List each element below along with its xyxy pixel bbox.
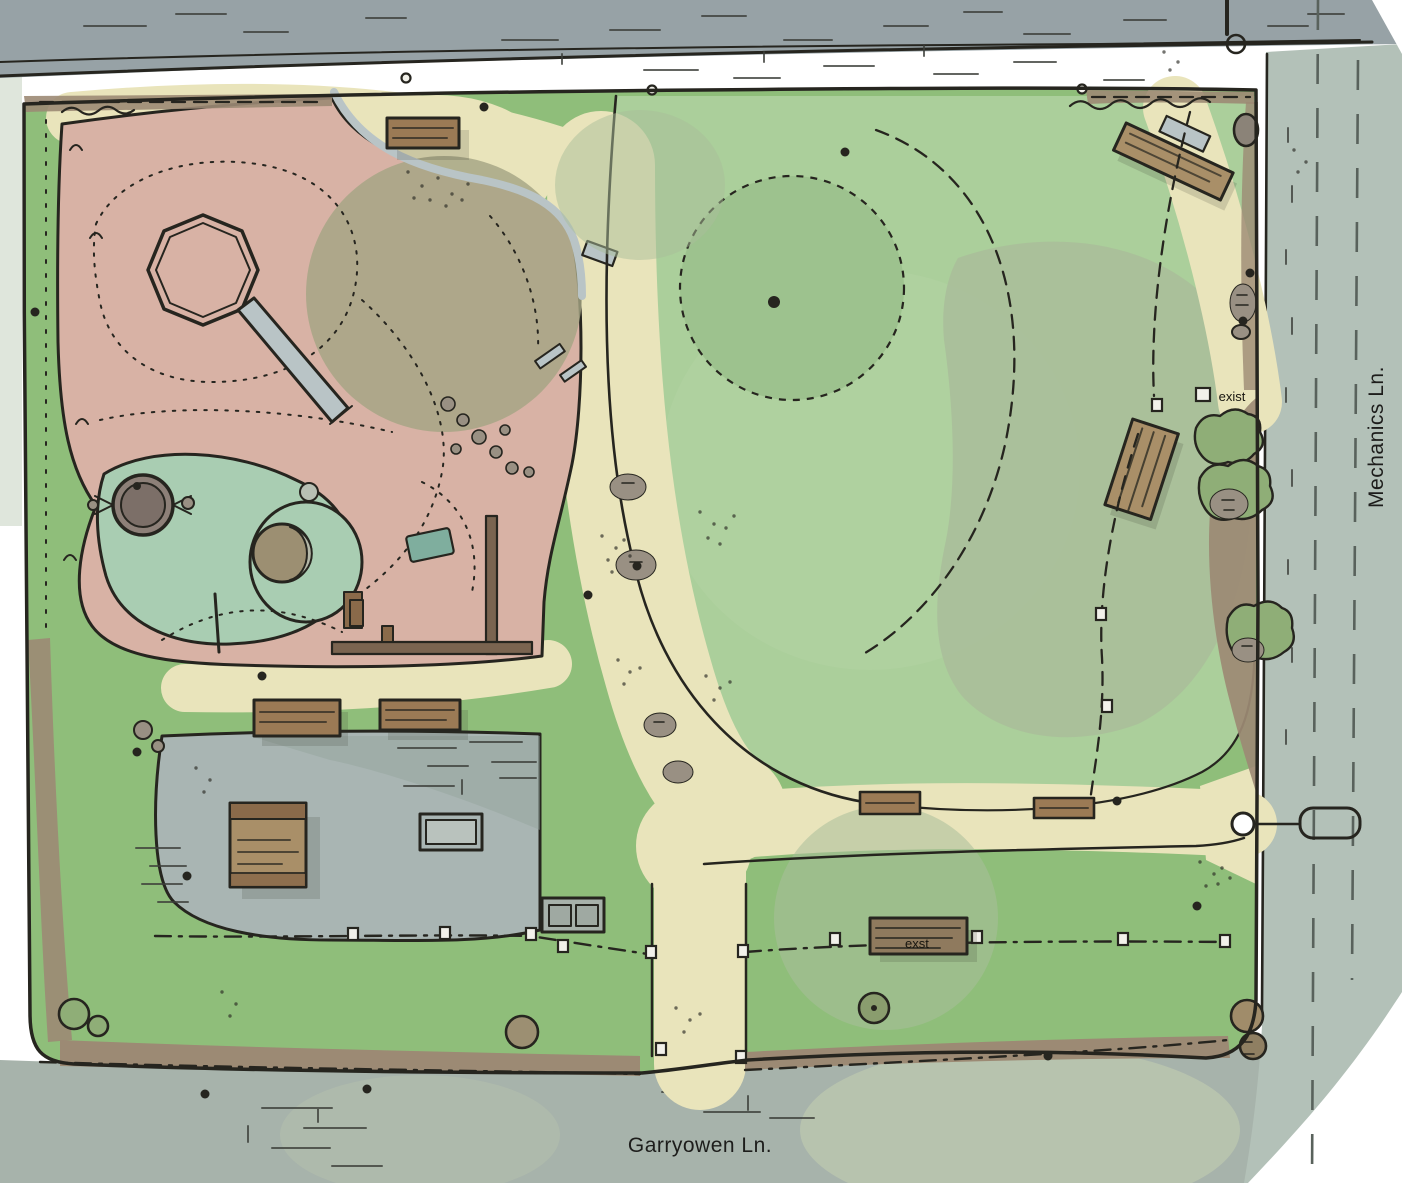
bench-east-west-path <box>860 792 920 814</box>
climbing-boulder <box>253 524 312 582</box>
table-north-plaza <box>387 118 469 160</box>
street-label-mechanics: Mechanics Ln. <box>1365 366 1388 508</box>
bench-double-junction <box>542 898 604 932</box>
park-site-plan: exst exist <box>0 0 1402 1183</box>
east-west-path <box>706 816 1244 828</box>
table-north-of-plaza <box>254 700 348 746</box>
tree-trunk <box>768 296 780 308</box>
timber-wall-south <box>332 642 532 654</box>
gate-note-exist: exist <box>1219 389 1246 404</box>
gate-east <box>1232 813 1254 835</box>
fence-post-round <box>402 74 411 83</box>
gate-existing <box>1196 388 1210 401</box>
play-disc <box>300 483 318 501</box>
timber-post <box>350 600 363 626</box>
path-junction <box>636 788 752 904</box>
site-plan-drawing: exst exist <box>0 0 1402 1183</box>
rock <box>134 721 152 739</box>
rock <box>152 740 164 752</box>
paper-margin-strip <box>0 56 22 526</box>
bench-plaza-outlined <box>420 814 482 850</box>
timber-post <box>382 626 393 642</box>
street-label-garryowen: Garryowen Ln. <box>628 1134 772 1157</box>
table-plaza-large <box>230 803 320 899</box>
bench-east-west-path <box>1034 798 1094 818</box>
timber-wall-east <box>486 516 497 654</box>
bench-note-exst: exst <box>905 936 929 951</box>
park: exst exist <box>24 50 1360 1098</box>
tree-canopy-top <box>555 110 725 260</box>
table-north-of-plaza <box>380 700 468 740</box>
